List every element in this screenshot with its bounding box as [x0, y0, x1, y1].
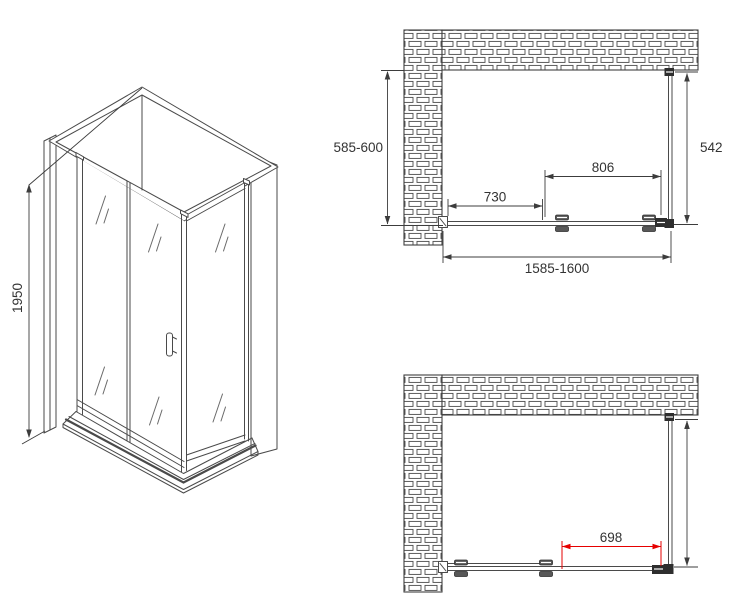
dim-total-width-label: 1585-1600 — [525, 261, 590, 276]
roller — [455, 560, 468, 577]
plan-side-panel — [665, 68, 675, 227]
dim-fixed-section: 730 — [448, 190, 543, 221]
dim-height-label: 1950 — [10, 283, 25, 313]
iso-side-panel — [187, 179, 250, 462]
dim-opening-label: 698 — [600, 530, 623, 545]
wall-left-hatch — [404, 375, 442, 592]
roller — [643, 215, 656, 232]
dim-door-section: 806 — [545, 160, 661, 217]
plan-side-panel — [665, 413, 675, 572]
roller — [540, 560, 553, 577]
dim-door-section-label: 806 — [592, 160, 615, 175]
plan-rail — [439, 215, 675, 232]
wall-top-hatch — [442, 375, 698, 415]
wall-left-hatch — [404, 30, 442, 245]
dim-fixed-section-label: 730 — [484, 190, 507, 205]
dim-side-panel: 542 — [674, 72, 723, 225]
dim-side-panel-open — [674, 420, 698, 568]
dim-total-width: 1585-1600 — [443, 231, 671, 276]
dim-side-panel-label: 542 — [700, 140, 723, 155]
isometric-view: 1950 — [10, 87, 278, 493]
dim-opening: 698 — [562, 530, 661, 569]
plan-rail-open — [439, 560, 674, 577]
top-plan-view: 585-600 542 806 730 — [333, 30, 722, 276]
wall-top-hatch — [442, 30, 698, 70]
roller — [556, 215, 569, 232]
drawing-svg: 1950 — [0, 0, 734, 600]
dim-depth-label: 585-600 — [333, 140, 383, 155]
bottom-plan-view: 698 — [404, 375, 698, 592]
iso-left-wall — [44, 135, 56, 433]
technical-drawing-canvas: 1950 — [0, 0, 734, 600]
